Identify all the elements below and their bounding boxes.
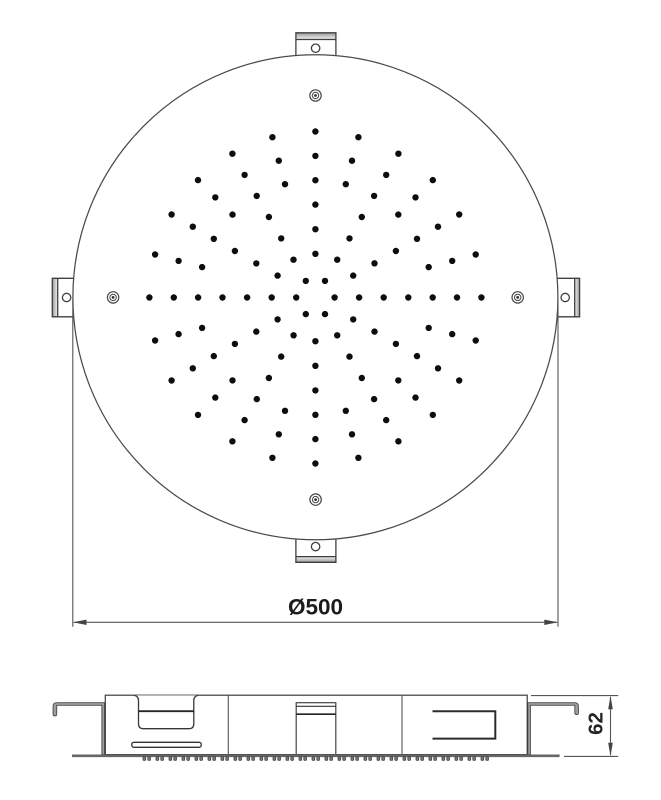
svg-text:Ø500: Ø500 — [288, 595, 343, 620]
svg-text:62: 62 — [585, 712, 608, 735]
